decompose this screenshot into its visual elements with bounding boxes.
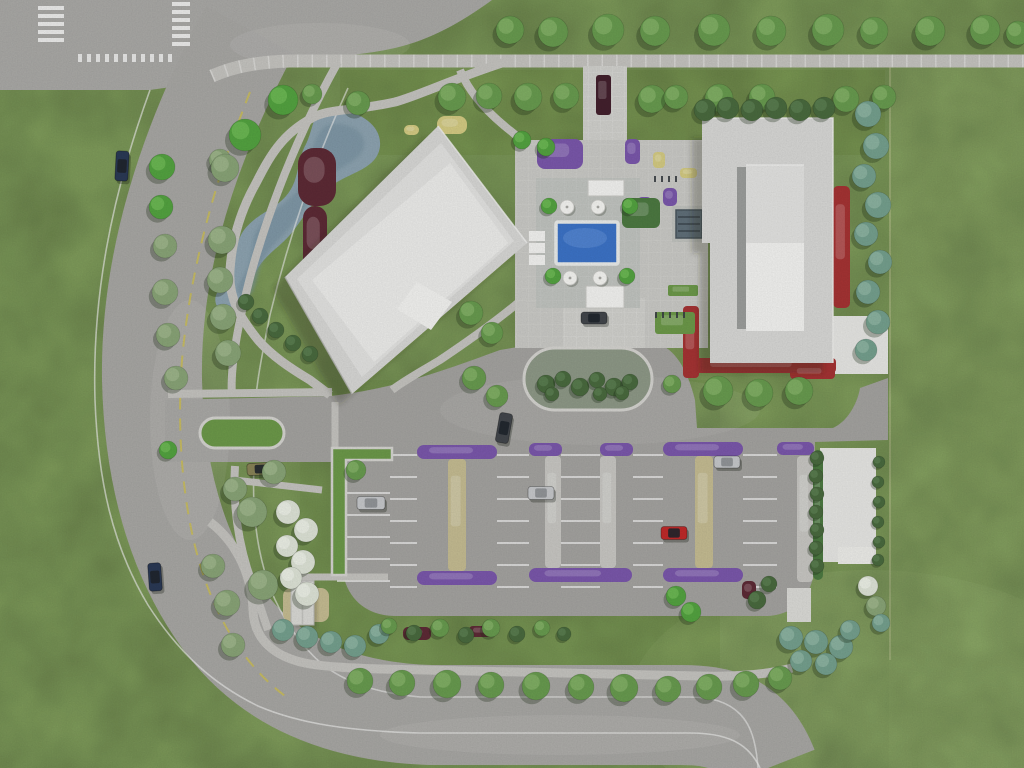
- aerial-site-plan: [0, 0, 1024, 768]
- film-grain-light: [0, 0, 1024, 768]
- texture-overlays: [0, 0, 1024, 768]
- site-plan-canvas: [0, 0, 1024, 768]
